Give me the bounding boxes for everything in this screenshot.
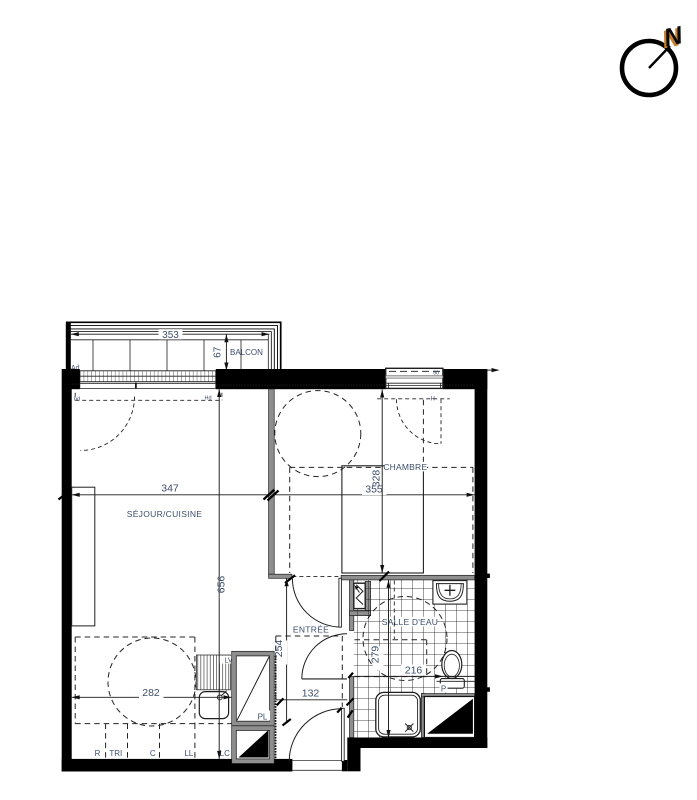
- svg-text:C: C: [150, 749, 156, 758]
- svg-text:PL: PL: [258, 713, 268, 722]
- svg-text:BALCON: BALCON: [230, 348, 263, 357]
- svg-text:353: 353: [162, 330, 179, 341]
- svg-text:279: 279: [369, 646, 381, 664]
- svg-text:SÉJOUR/CUISINE: SÉJOUR/CUISINE: [127, 509, 203, 519]
- svg-text:254: 254: [273, 640, 285, 658]
- svg-text:ENTRÉE: ENTRÉE: [293, 624, 329, 634]
- svg-text:328: 328: [371, 470, 383, 488]
- svg-text:H: H: [431, 397, 435, 403]
- svg-text:132: 132: [302, 688, 320, 700]
- svg-text:LL: LL: [184, 749, 193, 758]
- svg-text:Hd: Hd: [205, 396, 212, 402]
- svg-text:P: P: [441, 685, 446, 694]
- svg-text:90: 90: [433, 371, 439, 377]
- svg-text:656: 656: [216, 576, 228, 594]
- svg-text:TRI: TRI: [109, 749, 122, 758]
- svg-text:347: 347: [161, 483, 179, 495]
- svg-text:282: 282: [142, 687, 160, 699]
- svg-text:216: 216: [405, 664, 423, 676]
- svg-text:SALLE D'EAU: SALLE D'EAU: [382, 617, 438, 627]
- svg-text:CHAMBRE: CHAMBRE: [383, 462, 427, 472]
- svg-text:bd: bd: [74, 397, 80, 403]
- svg-text:LC: LC: [220, 749, 230, 758]
- svg-text:R: R: [95, 749, 101, 758]
- svg-text:67: 67: [212, 346, 223, 358]
